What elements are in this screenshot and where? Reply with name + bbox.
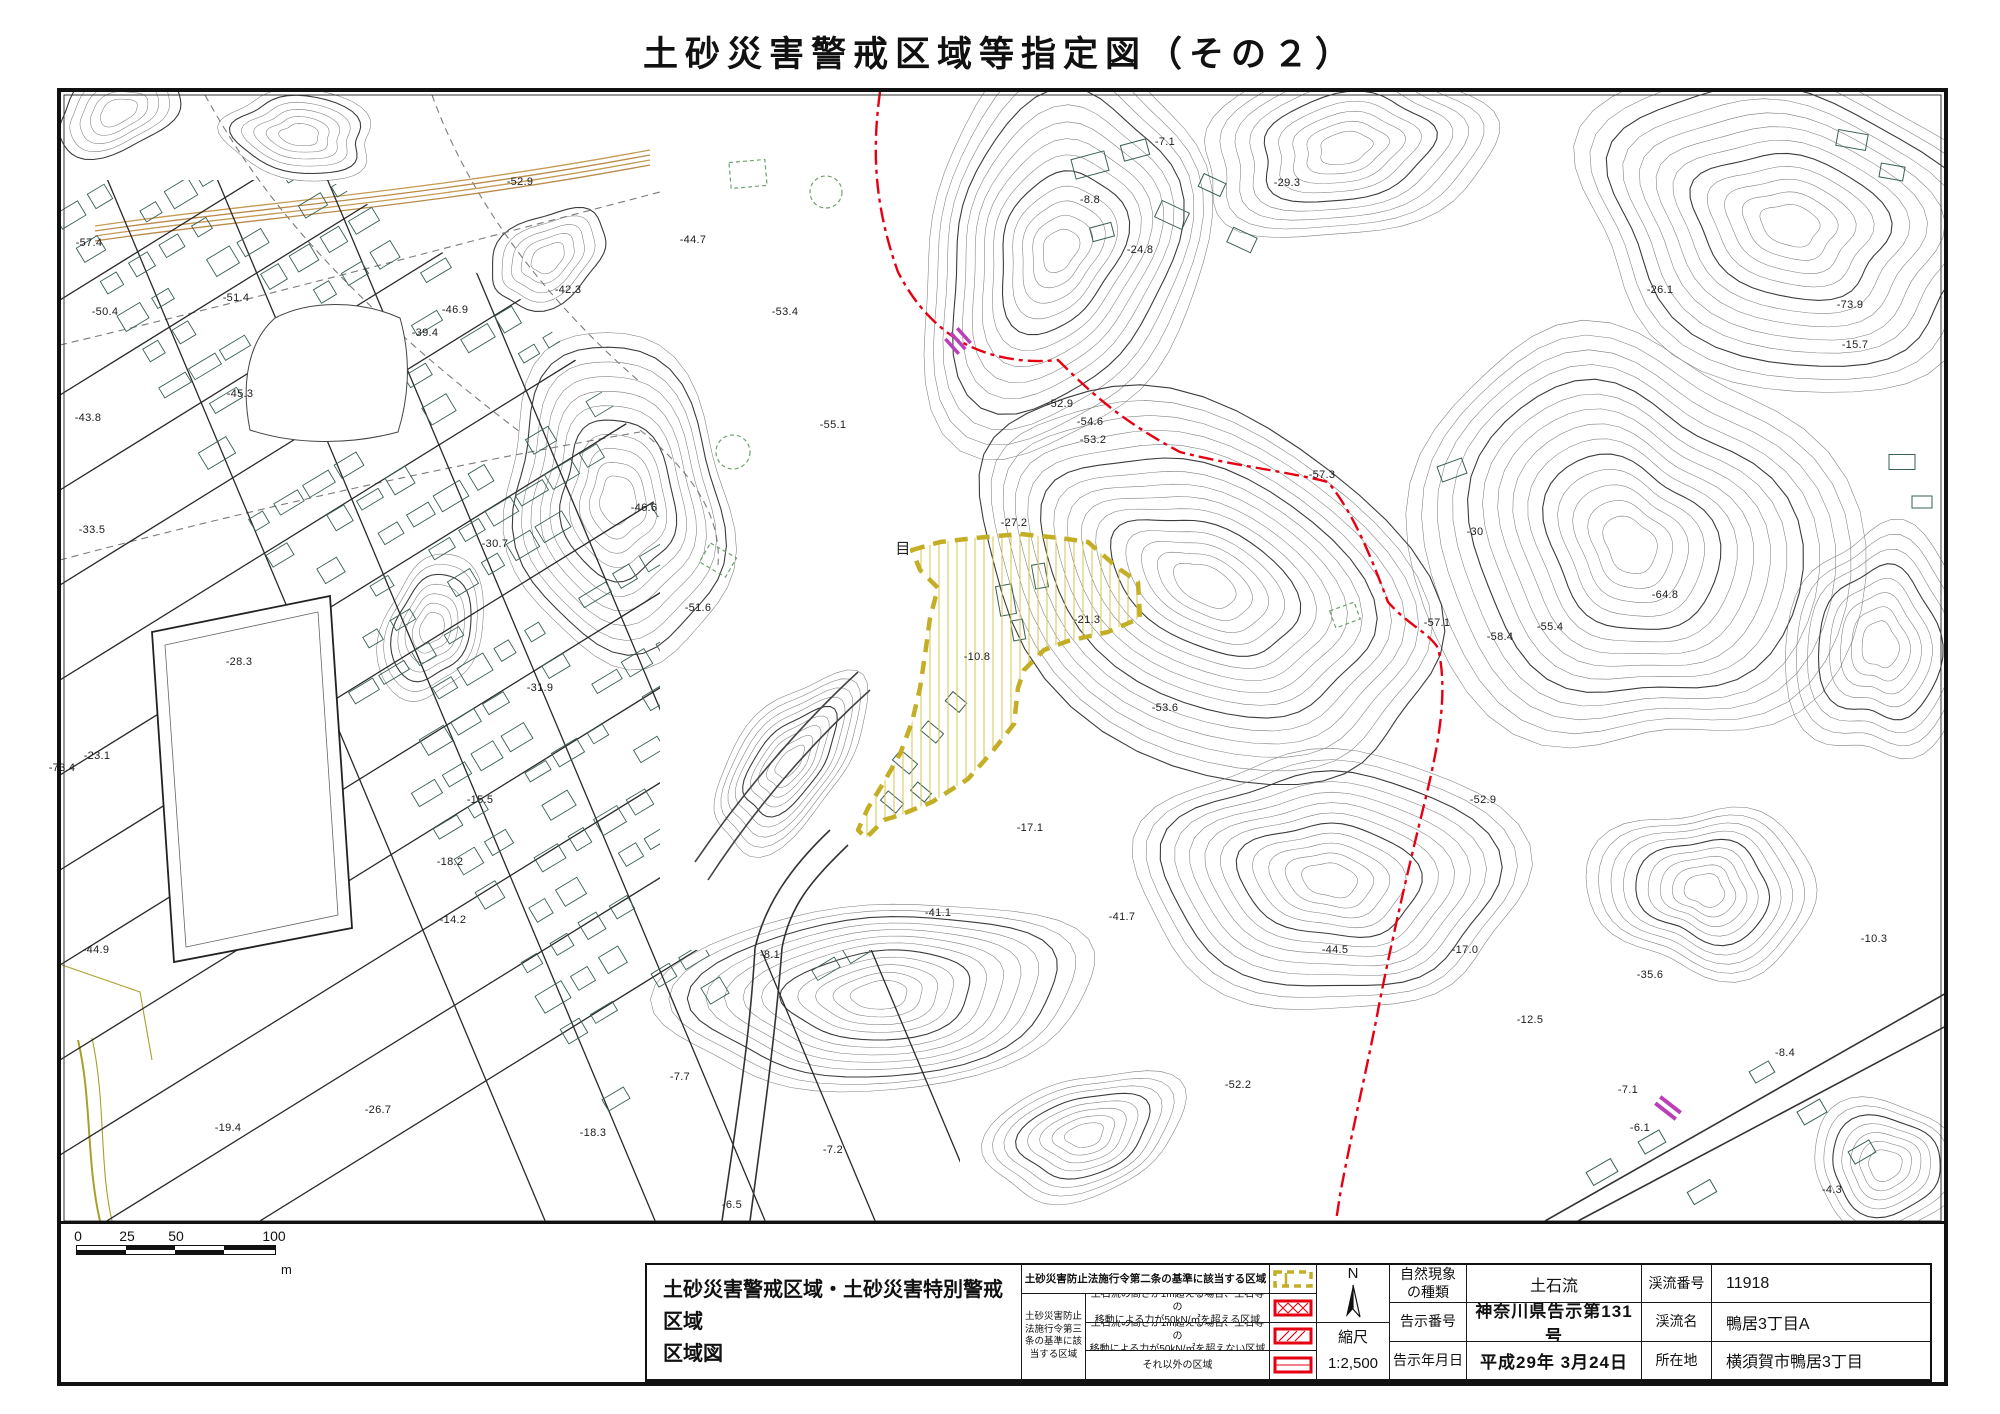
special-zone-crosshatch-icon [1272, 1298, 1314, 1318]
legend-row2-line2: 移動による力が50kN/㎡を超える区域 [1095, 1314, 1261, 1322]
phenomenon-value: 土石流 [1530, 1272, 1578, 1296]
group-label-line: 土砂災害防止 [1025, 1311, 1082, 1324]
legend-symbol-special-2 [1269, 1323, 1316, 1352]
phenomenon-label-line1: 自然現象 [1400, 1266, 1456, 1284]
north-label: N [1348, 1266, 1359, 1283]
map-bottom-separator [57, 1221, 1948, 1224]
stream-name-label: 渓流名 [1656, 1313, 1698, 1331]
legend-row4-line1: それ以外の区域 [1143, 1359, 1213, 1372]
legend-row3-label-cell: 土石流の高さが1m超える場合、土石等の 移動による力が50kN/㎡を超えない区域 [1085, 1323, 1269, 1352]
phenomenon-label-line2: の種類 [1407, 1284, 1449, 1302]
legend-group-label-cell: 土砂災害防止 法施行令第三 条の基準に該 当する区域 [1021, 1294, 1085, 1380]
north-arrow-icon [1340, 1283, 1366, 1321]
sheet-title-line1: 土砂災害警戒区域・土砂災害特別警戒区域 [663, 1274, 1021, 1338]
info-value-stream-no: 11918 [1711, 1265, 1932, 1303]
legend-symbol-special-1 [1269, 1294, 1316, 1323]
special-zone-hatch-icon [1272, 1326, 1314, 1346]
scale-bar-ticks: 0 25 50 100 [76, 1228, 306, 1245]
scale-tick: 50 [168, 1228, 184, 1244]
info-value-notice-date: 平成29年 3月24日 [1466, 1342, 1641, 1380]
info-label-stream-name: 渓流名 [1641, 1303, 1711, 1341]
location-label: 所在地 [1656, 1352, 1698, 1370]
north-arrow-cell: N [1316, 1265, 1389, 1323]
info-label-notice-date: 告示年月日 [1389, 1342, 1466, 1380]
scale-value: 1:2,500 [1328, 1351, 1378, 1377]
group-label-line: 法施行令第三 [1025, 1324, 1082, 1337]
legend-row4-label-cell: それ以外の区域 [1085, 1351, 1269, 1380]
scale-tick: 0 [74, 1228, 82, 1244]
legend-row2-line1: 土石流の高さが1m超える場合、土石等の [1086, 1294, 1269, 1314]
info-label-notice-no: 告示番号 [1389, 1303, 1466, 1341]
info-value-phenomenon: 土石流 [1466, 1265, 1641, 1303]
hazard-map-sheet: 土砂災害警戒区域等指定図（その２） [0, 0, 2000, 1414]
legend-row1-label-cell: 土砂災害防止法施行令第二条の基準に該当する区域 [1021, 1265, 1269, 1294]
group-label-line: 当する区域 [1030, 1349, 1078, 1362]
notice-no-label: 告示番号 [1400, 1313, 1456, 1331]
notice-no-value: 神奈川県告示第131号 [1467, 1303, 1641, 1341]
info-label-phenomenon: 自然現象 の種類 [1389, 1265, 1466, 1303]
other-zone-symbol-icon [1272, 1355, 1314, 1375]
scale-bar-graphic: m [76, 1245, 276, 1255]
legend-row1-label: 土砂災害防止法施行令第二条の基準に該当する区域 [1025, 1271, 1267, 1286]
warning-zone-symbol-icon [1272, 1269, 1314, 1289]
legend-row2-label-cell: 土石流の高さが1m超える場合、土石等の 移動による力が50kN/㎡を超える区域 [1085, 1294, 1269, 1323]
group-label-line: 条の基準に該 [1025, 1336, 1082, 1349]
stream-name-value: 鴨居3丁目A [1726, 1310, 1810, 1334]
scale-cell: 縮尺 1:2,500 [1316, 1323, 1389, 1381]
legend-info-table: 土砂災害警戒区域・土砂災害特別警戒区域 区域図 土砂災害防止法施行令第二条の基準… [645, 1263, 1932, 1382]
info-label-stream-no: 渓流番号 [1641, 1265, 1711, 1303]
notice-date-value: 平成29年 3月24日 [1480, 1348, 1628, 1373]
scale-label: 縮尺 [1338, 1325, 1368, 1351]
info-label-location: 所在地 [1641, 1342, 1711, 1380]
sheet-title-line2: 区域図 [663, 1338, 723, 1370]
info-value-notice-no: 神奈川県告示第131号 [1466, 1303, 1641, 1341]
info-value-stream-name: 鴨居3丁目A [1711, 1303, 1932, 1341]
scale-unit: m [281, 1262, 292, 1277]
location-value: 横須賀市鴨居3丁目 [1726, 1348, 1863, 1372]
legend-symbol-warning [1269, 1265, 1316, 1294]
sheet-title-cell: 土砂災害警戒区域・土砂災害特別警戒区域 区域図 [647, 1265, 1021, 1380]
stream-no-value: 11918 [1726, 1275, 1769, 1293]
stream-no-label: 渓流番号 [1649, 1275, 1705, 1293]
legend-row3-line2: 移動による力が50kN/㎡を超えない区域 [1090, 1343, 1266, 1351]
info-value-location: 横須賀市鴨居3丁目 [1711, 1342, 1932, 1380]
scale-tick: 25 [119, 1228, 135, 1244]
legend-row3-line1: 土石流の高さが1m超える場合、土石等の [1086, 1323, 1269, 1343]
notice-date-label: 告示年月日 [1393, 1352, 1463, 1370]
legend-symbol-other [1269, 1351, 1316, 1380]
scale-tick: 100 [262, 1228, 285, 1244]
map-frame [57, 88, 1948, 1386]
scale-bar: 0 25 50 100 m [76, 1228, 306, 1255]
